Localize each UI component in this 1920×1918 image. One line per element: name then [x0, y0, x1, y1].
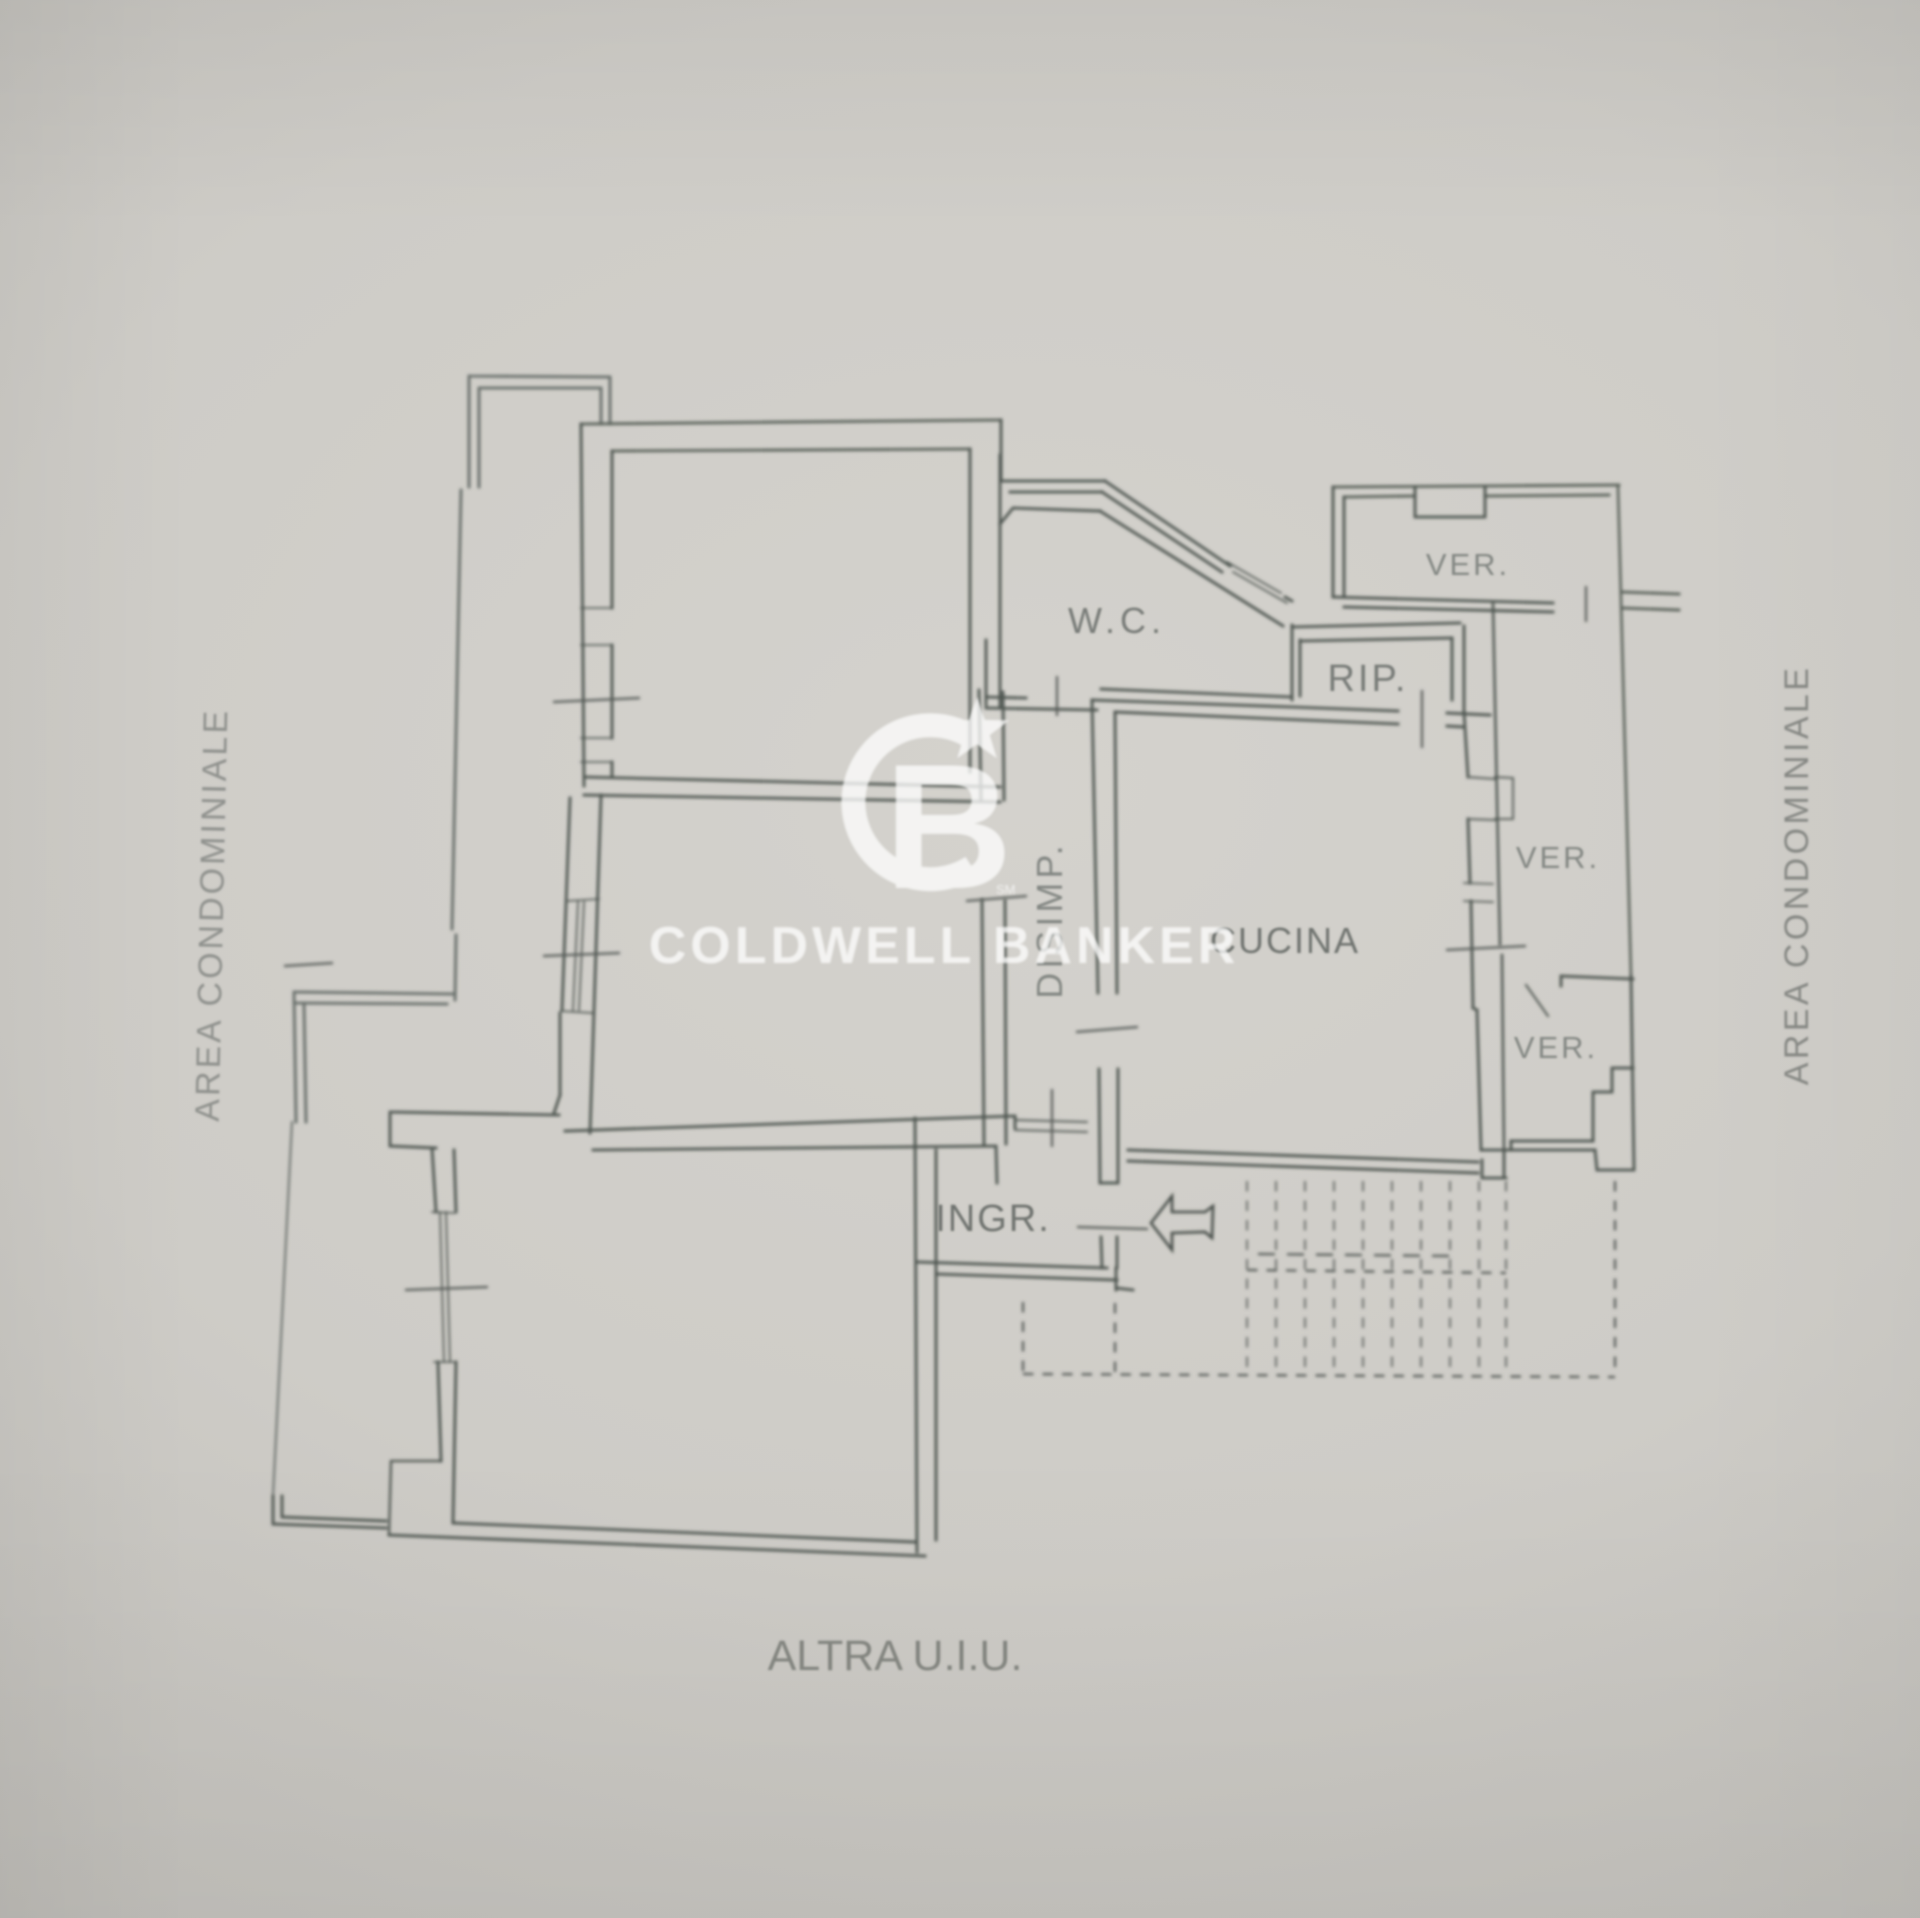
svg-text:W.C.: W.C. — [1068, 600, 1166, 641]
svg-text:SM: SM — [996, 882, 1016, 897]
svg-text:AREA CONDOMINIALE: AREA CONDOMINIALE — [189, 708, 236, 1122]
svg-text:VER.: VER. — [1514, 1030, 1598, 1065]
svg-text:B: B — [884, 727, 1013, 926]
svg-text:VER.: VER. — [1516, 840, 1600, 875]
svg-text:VER.: VER. — [1426, 547, 1510, 582]
svg-text:AREA CONDOMINIALE: AREA CONDOMINIALE — [1778, 665, 1816, 1086]
svg-text:RIP.: RIP. — [1327, 658, 1408, 700]
svg-text:ALTRA U.I.U.: ALTRA U.I.U. — [768, 1632, 1023, 1680]
svg-text:INGR.: INGR. — [935, 1198, 1051, 1240]
svg-text:COLDWELL BANKER: COLDWELL BANKER — [649, 917, 1240, 975]
